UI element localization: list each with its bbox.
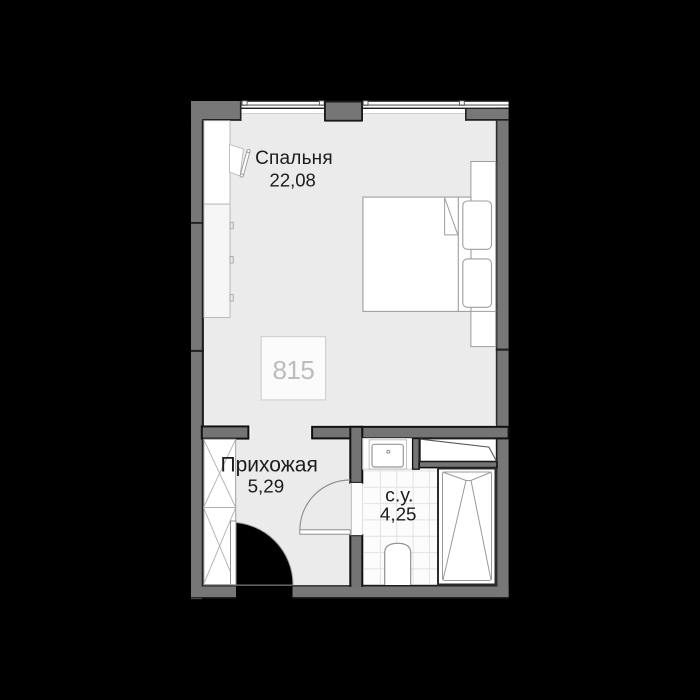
- svg-text:Спальня: Спальня: [255, 148, 333, 169]
- svg-text:4,25: 4,25: [380, 504, 417, 525]
- svg-text:5,29: 5,29: [248, 476, 285, 497]
- svg-text:815: 815: [272, 355, 314, 385]
- svg-text:Прихожая: Прихожая: [221, 454, 318, 477]
- svg-text:22,08: 22,08: [270, 170, 316, 191]
